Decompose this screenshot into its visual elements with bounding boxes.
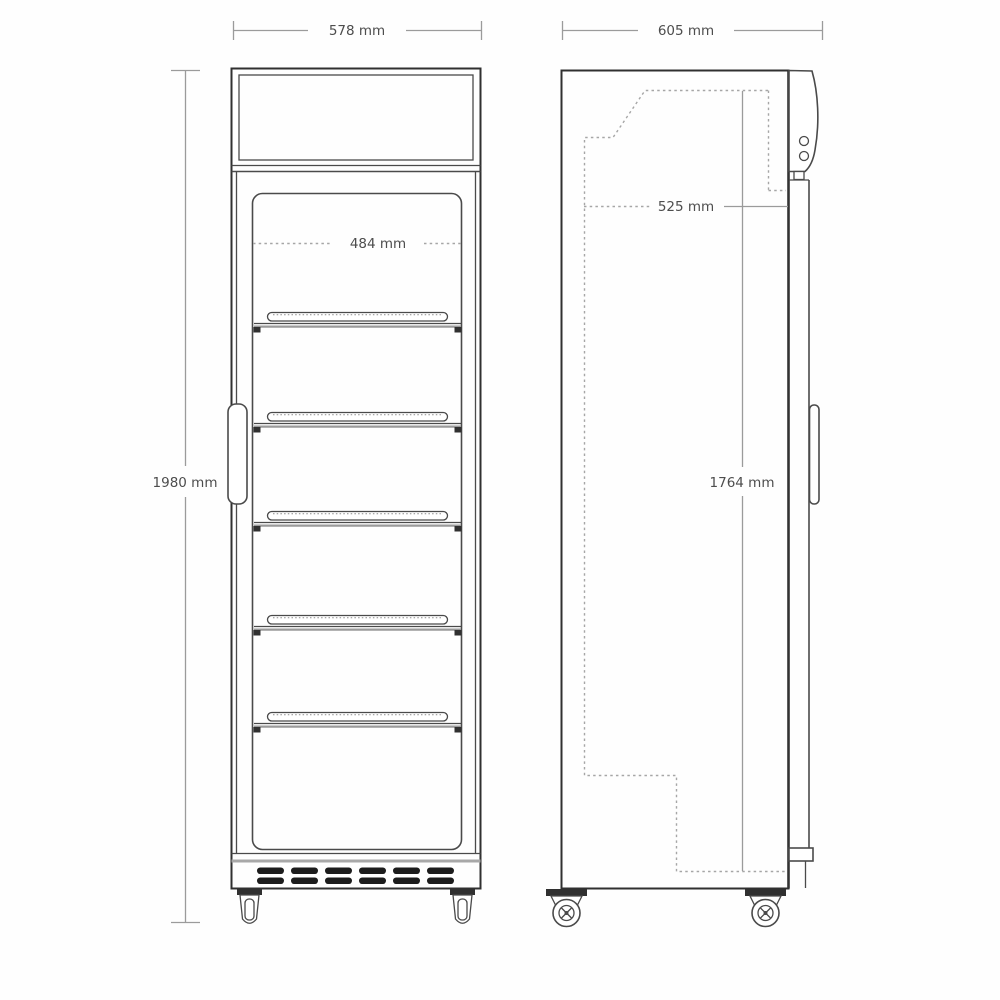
side-cabinet: 525 mm 1764 mm	[546, 71, 819, 927]
grille-slot	[291, 868, 318, 875]
dim-label-height: 1980 mm	[153, 475, 218, 491]
caster-side-back	[546, 889, 587, 927]
grille-slot	[427, 878, 454, 885]
front-cabinet: 484 mm	[228, 69, 481, 924]
glass-reflection	[369, 753, 426, 824]
shelf	[254, 313, 462, 333]
side-view: 605 mm	[546, 21, 823, 927]
grille-slot	[325, 878, 352, 885]
dim-label-glass-width: 484 mm	[350, 236, 406, 252]
front-view: 578 mm 1980 mm	[153, 21, 482, 923]
shelf	[254, 413, 462, 433]
glass-pane	[253, 194, 462, 850]
dim-label-internal-height: 1764 mm	[710, 475, 775, 491]
dim-label-front-width: 578 mm	[329, 23, 385, 39]
height-dimension: 1980 mm	[153, 71, 218, 923]
dim-label-internal-depth: 525 mm	[658, 199, 714, 215]
caster-front-left	[237, 889, 262, 923]
caster-front-right	[450, 889, 475, 923]
glass-width-dimension: 484 mm	[253, 236, 461, 252]
door-handle-side	[810, 405, 820, 504]
glass-door	[253, 194, 462, 850]
control-button	[800, 152, 809, 161]
grille-slot	[257, 868, 284, 875]
door-top-panel	[789, 71, 818, 180]
front-width-dimension: 578 mm	[234, 21, 482, 40]
shelf	[254, 616, 462, 636]
grille-slot	[393, 868, 420, 875]
caster-side-front	[745, 889, 786, 927]
cabinet-outline	[232, 69, 481, 889]
internal-depth-dimension: 525 mm	[584, 199, 788, 215]
shelf	[254, 512, 462, 532]
hinge-top	[794, 172, 804, 180]
grille-slot	[359, 878, 386, 885]
grille-slot	[393, 878, 420, 885]
dim-label-depth: 605 mm	[658, 23, 714, 39]
hinge-bottom	[789, 848, 813, 861]
door-handle	[228, 404, 247, 504]
shelf	[254, 713, 462, 733]
grille-slot	[359, 868, 386, 875]
depth-dimension: 605 mm	[563, 21, 823, 40]
header-sign-panel	[232, 75, 481, 172]
side-door	[789, 180, 819, 888]
grille-slot	[291, 878, 318, 885]
internal-height-dimension: 1764 mm	[710, 91, 775, 871]
grille-slot	[325, 868, 352, 875]
control-button	[800, 137, 809, 146]
refrigerator-dimension-drawing: 578 mm 1980 mm	[0, 0, 1000, 1000]
grille-slot	[257, 878, 284, 885]
glass-reflection	[287, 223, 344, 294]
grille-slot	[427, 868, 454, 875]
ventilation-grille	[232, 854, 481, 885]
